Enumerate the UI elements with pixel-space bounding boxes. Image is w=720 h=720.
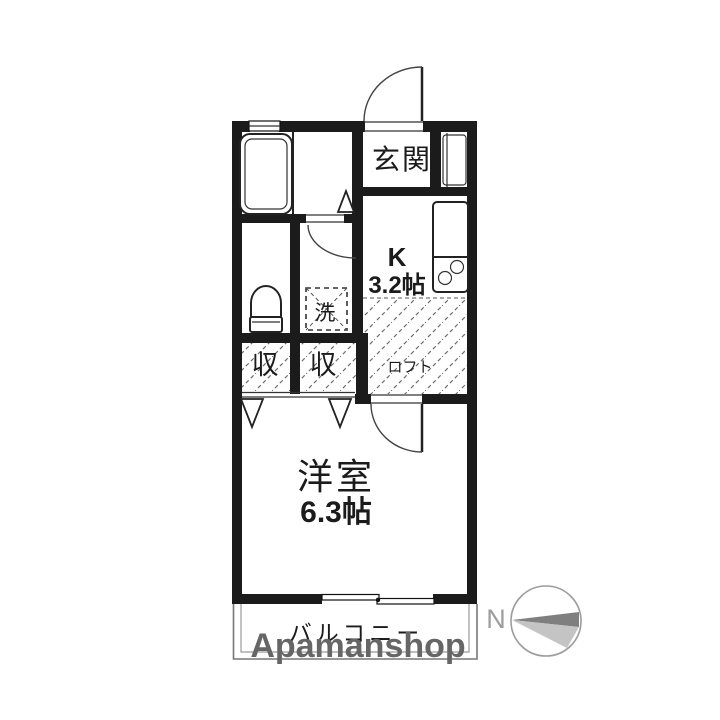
north-letter: N (486, 604, 506, 634)
western-room-door (371, 404, 422, 452)
sliding-window (322, 595, 434, 605)
closet-right-label: 収 (310, 350, 337, 380)
kitchen-size-label: 3.2帖 (368, 272, 425, 299)
floorplan-drawing: 玄関 K 3.2帖 洗 収 収 ロフト 洋室 6.3帖 バルコニー Apaman… (0, 0, 720, 720)
washer-label: 洗 (315, 302, 336, 325)
floorplan-canvas: 玄関 K 3.2帖 洗 収 収 ロフト 洋室 6.3帖 バルコニー Apaman… (0, 0, 720, 720)
closet-door-triangle-right (329, 399, 351, 427)
closet-left-label: 収 (252, 350, 279, 380)
western-room-size-label: 6.3帖 (300, 496, 372, 529)
loft-label: ロフト (387, 359, 432, 376)
door-triangle-middle-room (338, 191, 354, 212)
western-room-label: 洋室 (297, 456, 375, 497)
kitchen-counter (433, 202, 468, 292)
entrance-label: 玄関 (372, 144, 432, 175)
compass (511, 586, 581, 656)
toilet (250, 286, 282, 332)
shoe-cabinet (443, 133, 466, 187)
washroom-door (308, 225, 356, 258)
watermark-brand: Apamanshop (250, 627, 465, 665)
entrance-door (364, 67, 422, 121)
bathtub (240, 134, 292, 214)
closet-door-triangle-left (241, 399, 263, 427)
bathroom-window (249, 121, 280, 131)
kitchen-label: K (388, 242, 407, 272)
